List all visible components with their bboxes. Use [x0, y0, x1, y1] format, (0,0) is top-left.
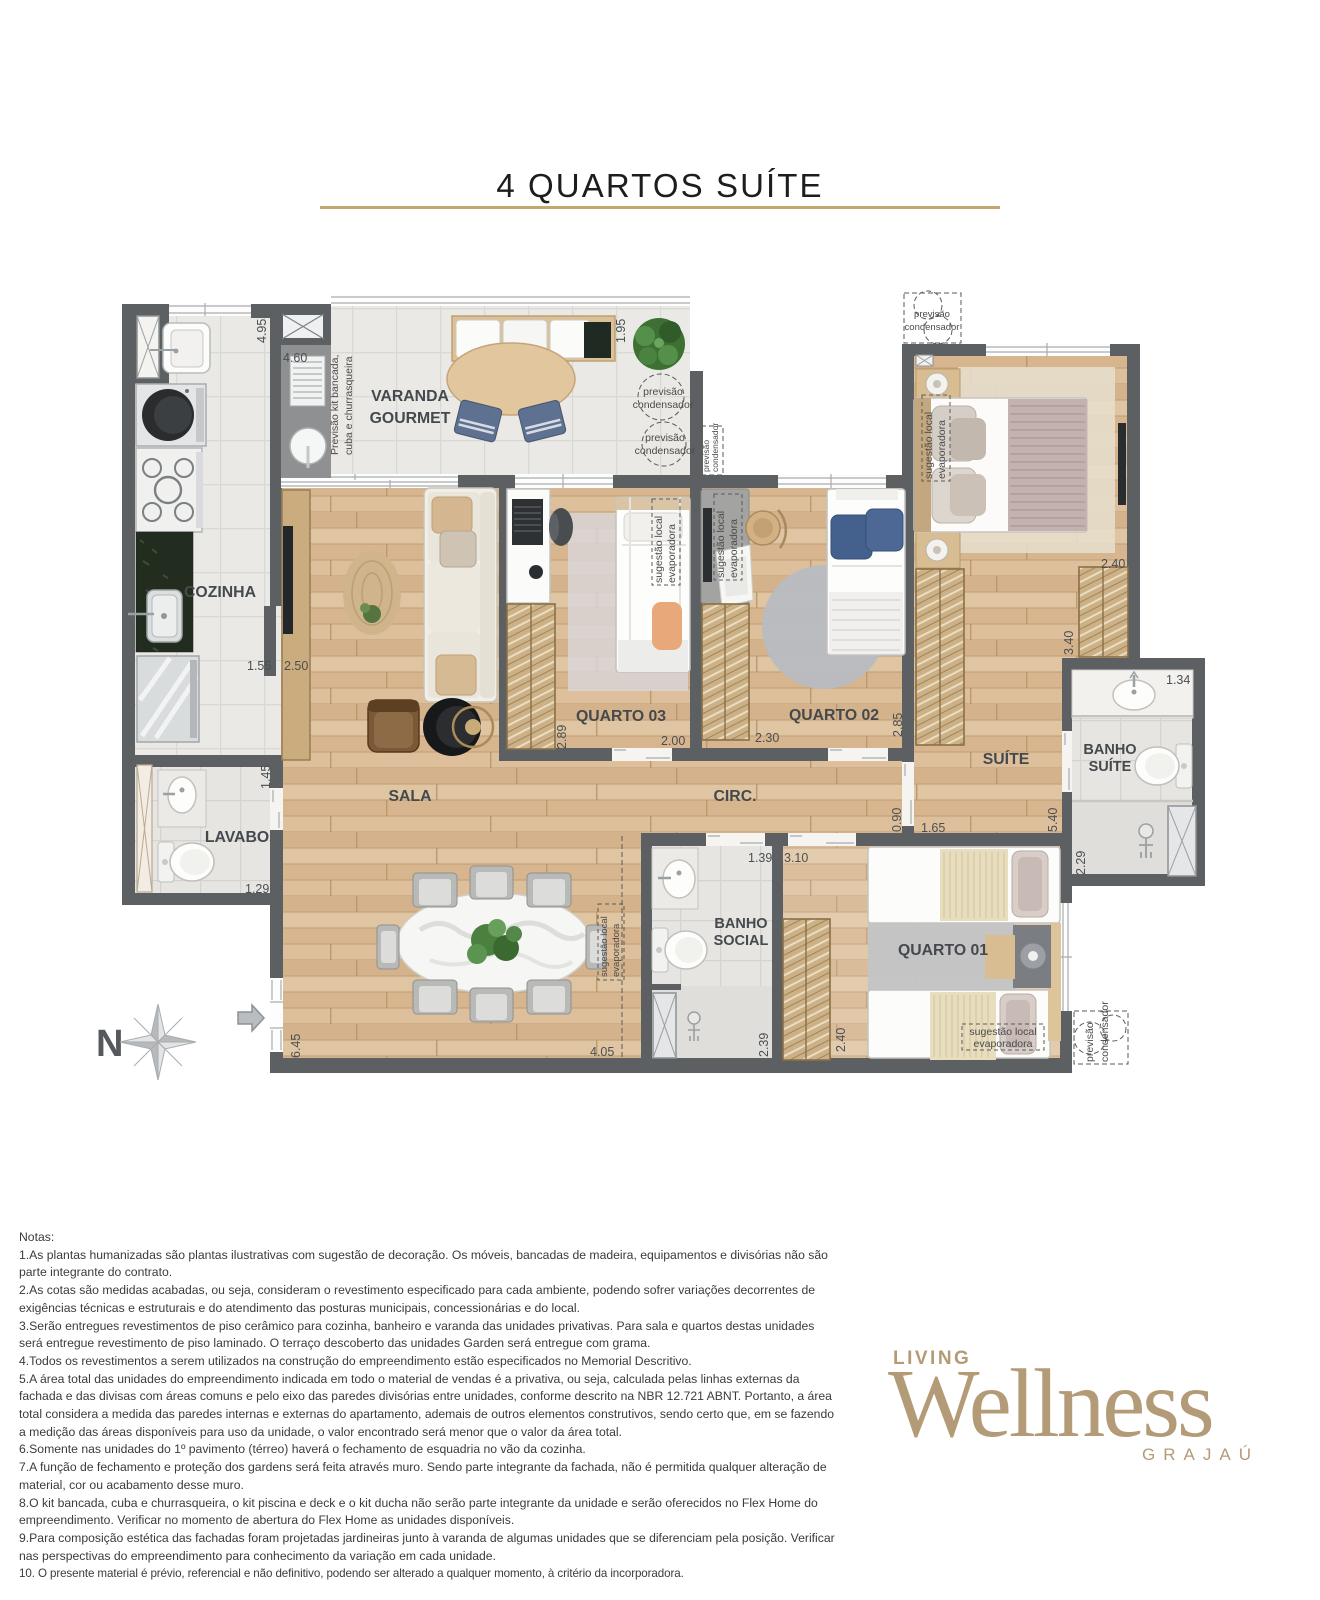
svg-text:condensador: condensador	[635, 445, 696, 457]
svg-text:GOURMET: GOURMET	[370, 410, 451, 427]
svg-text:condensador: condensador	[633, 399, 694, 411]
svg-text:cuba e churrasqueira: cuba e churrasqueira	[343, 356, 355, 455]
svg-text:5.40: 5.40	[1046, 808, 1060, 832]
svg-text:VARANDA: VARANDA	[371, 388, 449, 405]
svg-text:2.89: 2.89	[555, 725, 569, 749]
svg-text:2.85: 2.85	[891, 713, 905, 737]
svg-text:2.29: 2.29	[1074, 851, 1088, 875]
svg-text:evaporadora: evaporadora	[936, 420, 948, 479]
svg-text:3.10: 3.10	[784, 851, 808, 865]
svg-text:3.40: 3.40	[1062, 631, 1076, 655]
svg-text:QUARTO 03: QUARTO 03	[576, 708, 666, 725]
svg-text:2.39: 2.39	[757, 1033, 771, 1057]
svg-text:SUÍTE: SUÍTE	[1089, 758, 1132, 775]
svg-text:1.65: 1.65	[921, 821, 945, 835]
svg-text:1.34: 1.34	[1166, 673, 1190, 687]
svg-text:condensador: condensador	[1099, 1001, 1111, 1062]
svg-text:4.60: 4.60	[283, 351, 307, 365]
svg-text:sugestão local: sugestão local	[653, 516, 665, 583]
svg-text:sugestão local: sugestão local	[969, 1026, 1036, 1038]
svg-text:previsão: previsão	[645, 432, 685, 444]
svg-text:Previsão kit bancada,: Previsão kit bancada,	[329, 355, 341, 455]
svg-text:evaporadora: evaporadora	[974, 1038, 1033, 1050]
svg-text:0.90: 0.90	[890, 808, 904, 832]
svg-text:SUÍTE: SUÍTE	[983, 749, 1030, 768]
svg-text:previsão: previsão	[914, 309, 950, 320]
svg-text:1.39: 1.39	[748, 851, 772, 865]
svg-text:1.45: 1.45	[259, 765, 273, 789]
svg-text:previsão: previsão	[643, 386, 683, 398]
svg-text:1.95: 1.95	[614, 319, 628, 343]
svg-text:previsão: previsão	[1084, 1022, 1096, 1062]
svg-text:2.40: 2.40	[834, 1028, 848, 1052]
svg-text:condensador: condensador	[710, 423, 720, 472]
svg-text:COZINHA: COZINHA	[184, 584, 256, 601]
svg-text:SALA: SALA	[388, 788, 431, 805]
svg-text:evaporadora: evaporadora	[728, 519, 740, 578]
svg-text:2.00: 2.00	[661, 734, 685, 748]
svg-text:2.40: 2.40	[1101, 557, 1125, 571]
svg-text:1.29: 1.29	[245, 882, 269, 896]
svg-text:evaporadora: evaporadora	[666, 524, 678, 583]
svg-text:sugestão local: sugestão local	[715, 511, 727, 578]
svg-text:BANHO: BANHO	[1083, 742, 1136, 758]
svg-text:sugestão local: sugestão local	[923, 412, 935, 479]
svg-text:CIRC.: CIRC.	[713, 788, 756, 805]
svg-text:2.30: 2.30	[755, 731, 779, 745]
svg-text:condensador: condensador	[905, 322, 960, 333]
svg-text:LAVABO: LAVABO	[205, 829, 269, 846]
svg-text:N: N	[96, 1023, 123, 1065]
svg-text:2.50: 2.50	[284, 659, 308, 673]
svg-text:sugestão local: sugestão local	[599, 916, 610, 977]
svg-text:BANHO: BANHO	[714, 916, 767, 932]
svg-text:1.55: 1.55	[247, 659, 271, 673]
svg-text:QUARTO 01: QUARTO 01	[898, 942, 988, 959]
svg-text:SOCIAL: SOCIAL	[714, 933, 769, 949]
svg-text:4.95: 4.95	[255, 319, 269, 343]
svg-text:4.05: 4.05	[590, 1045, 614, 1059]
svg-text:QUARTO 02: QUARTO 02	[789, 707, 879, 724]
svg-text:6.45: 6.45	[289, 1034, 303, 1058]
svg-text:evaporadora: evaporadora	[611, 923, 622, 977]
